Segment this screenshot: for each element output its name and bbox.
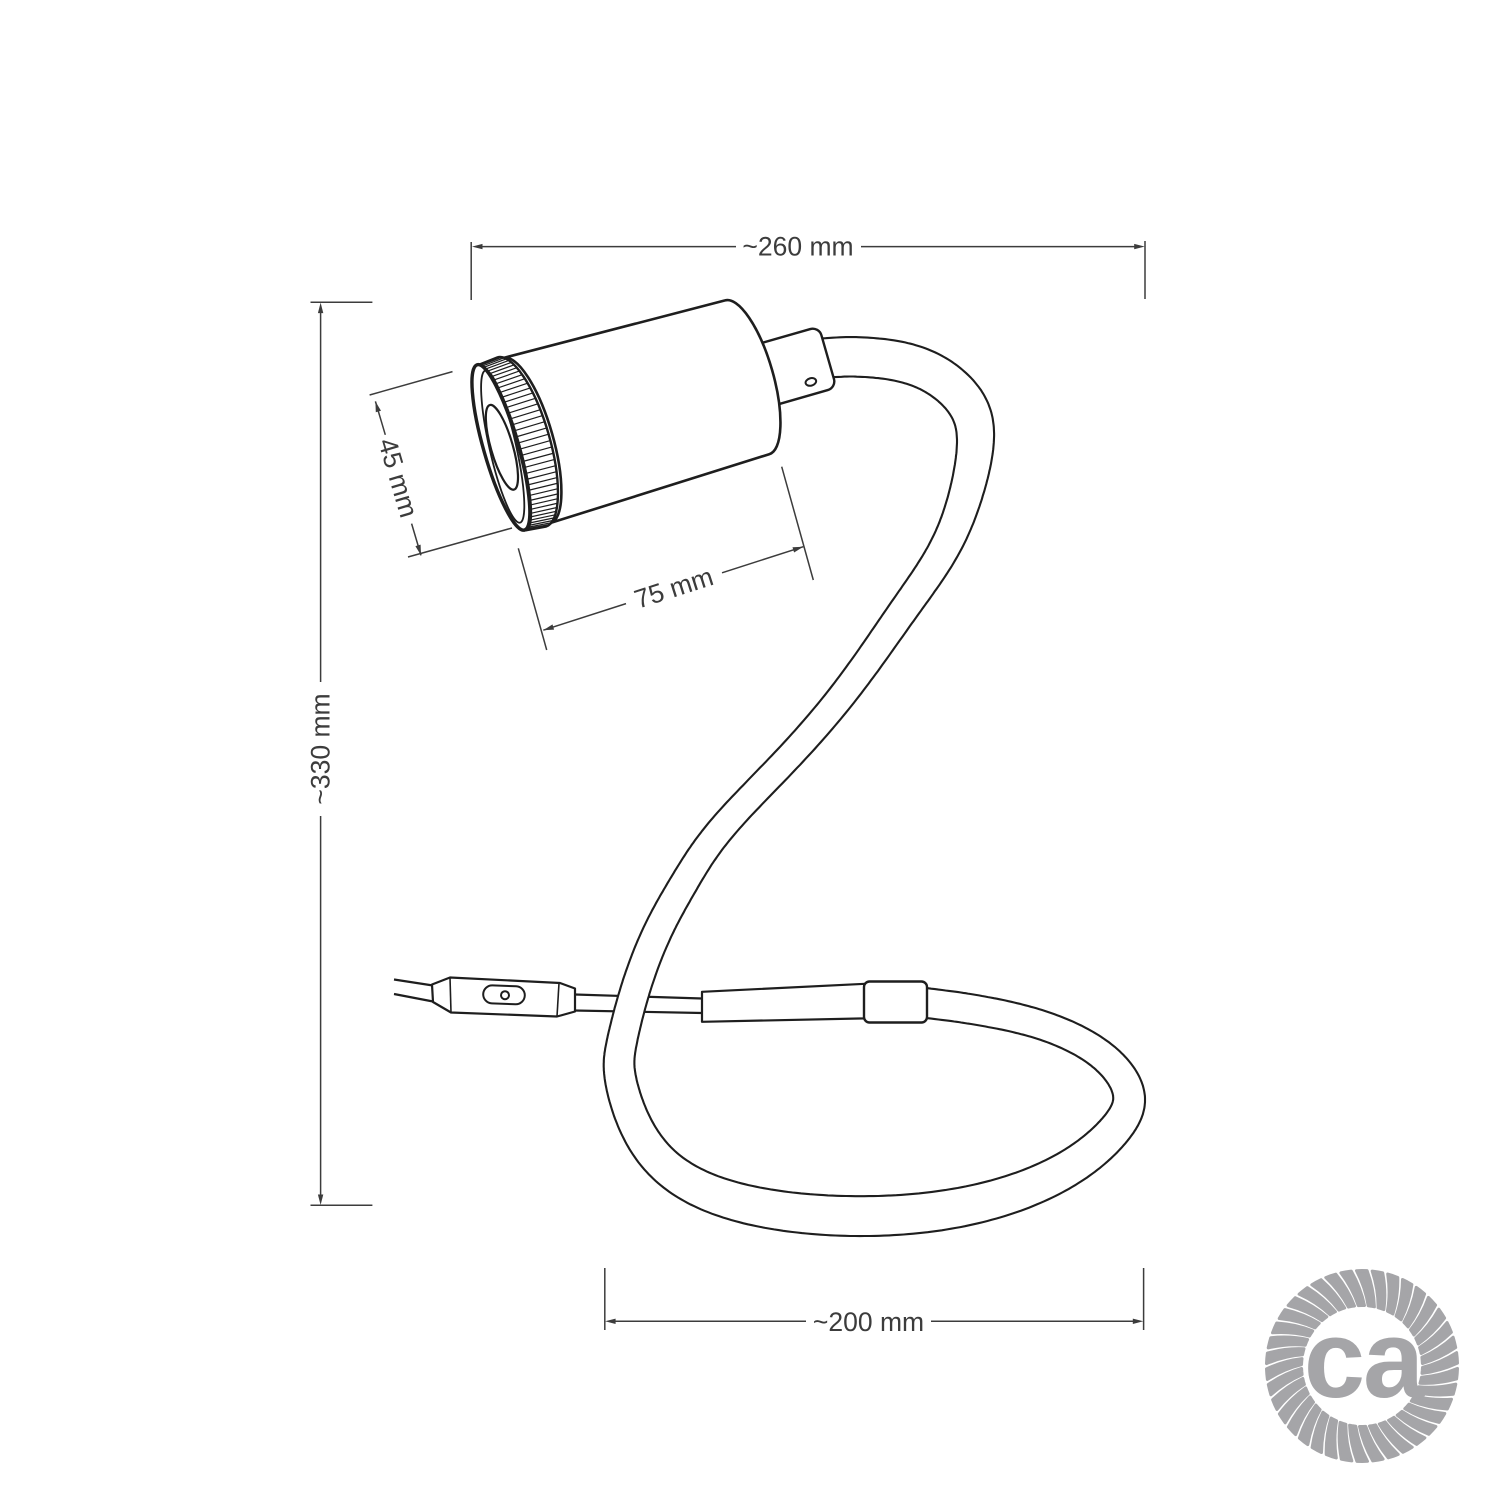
svg-text:~260 mm: ~260 mm xyxy=(742,232,853,262)
svg-text:ca: ca xyxy=(1304,1298,1425,1421)
svg-text:~330 mm: ~330 mm xyxy=(306,693,336,804)
svg-text:~200 mm: ~200 mm xyxy=(813,1307,924,1337)
